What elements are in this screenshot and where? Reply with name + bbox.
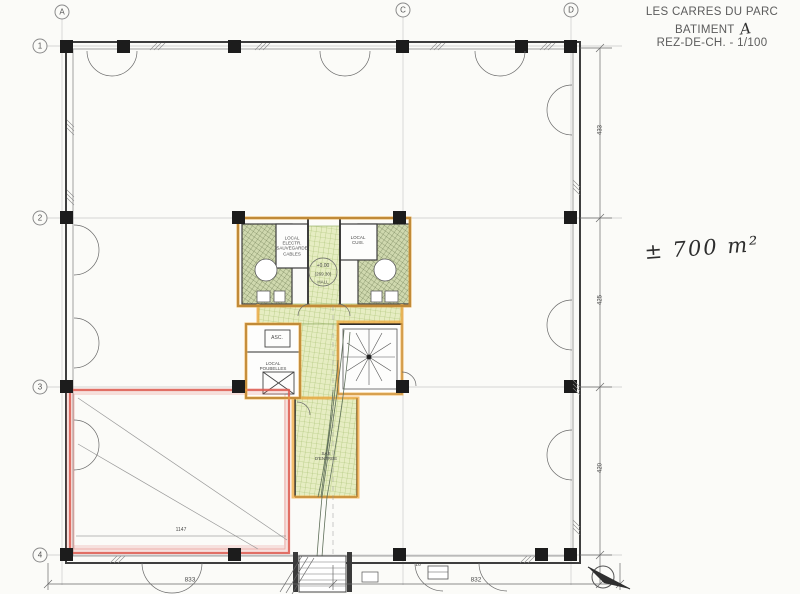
grid-bubble-4: 4 <box>33 548 48 563</box>
grid-bubble-3: 3 <box>33 380 48 395</box>
building-mark-handwritten: A <box>739 20 752 39</box>
north-arrow-icon <box>588 566 630 589</box>
floorplan-drawing <box>0 0 800 594</box>
grid-bubble-c: C <box>396 3 411 18</box>
grid-bubble-2: 2 <box>33 211 48 226</box>
entrance-steps <box>280 552 448 594</box>
grid-bubble-a: A <box>55 5 70 20</box>
level-title: REZ-DE-CH. - 1/100 <box>626 37 798 51</box>
red-highlight-room <box>66 388 290 554</box>
grid-bubble-d: D <box>564 3 579 18</box>
grid-bubble-1: 1 <box>33 39 48 54</box>
project-title: LES CARRES DU PARC <box>626 6 798 20</box>
building-title: BATIMENT A <box>626 20 798 38</box>
floorplan-page: LES CARRES DU PARC BATIMENT A REZ-DE-CH.… <box>0 0 800 594</box>
title-block: LES CARRES DU PARC BATIMENT A REZ-DE-CH.… <box>626 6 798 51</box>
